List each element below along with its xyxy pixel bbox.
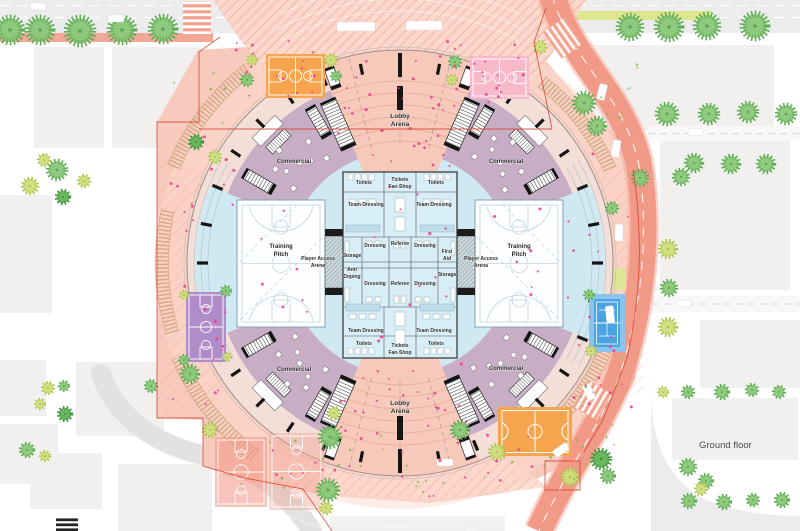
bench [424, 297, 430, 302]
tree [23, 179, 37, 193]
label-training-pitch-west: Training [269, 244, 293, 250]
crowd-dot [578, 344, 580, 346]
plant-dot [592, 447, 594, 449]
crowd-dot [527, 435, 529, 437]
crowd-dot [437, 407, 440, 410]
tree-center [251, 59, 253, 61]
crowd-dot [217, 389, 219, 391]
plant-dot [212, 72, 214, 74]
tree [190, 136, 203, 149]
crowd-dot [485, 93, 488, 96]
vehicle [605, 306, 615, 324]
tree [204, 424, 217, 437]
tree [681, 460, 695, 474]
label-tickets-north-2: Fan-Shop [388, 184, 411, 190]
crowd-dot [212, 359, 214, 361]
table-round [284, 169, 289, 174]
table-round [500, 171, 505, 176]
crowd-dot [438, 459, 441, 462]
tree-center [43, 159, 45, 161]
crowd-dot [333, 469, 336, 472]
crowd-dot [343, 400, 345, 402]
crowd-dot [388, 388, 390, 390]
label-dressing-nw: Dressing [364, 243, 385, 249]
plant-dot [283, 487, 285, 489]
locker-bank [346, 225, 380, 232]
crowd-dot [567, 296, 569, 298]
crowd-dot [368, 93, 371, 96]
crowd-dot [363, 377, 365, 379]
plant-dot [442, 481, 445, 484]
plant-dot [585, 386, 588, 389]
crowd-dot [444, 227, 446, 229]
vehicle-body [406, 21, 442, 30]
toilet-stall [424, 348, 429, 354]
tunnel-cap [457, 229, 475, 236]
crowd-dot [214, 391, 217, 394]
vehicle-body [337, 22, 375, 31]
tree-center [335, 75, 337, 77]
crosswalk-top-left [183, 1, 211, 34]
crowd-dot [176, 185, 179, 188]
crowd-dot [515, 261, 518, 264]
crowd-dot [377, 339, 380, 342]
tree-center [189, 373, 191, 375]
tree [776, 494, 789, 507]
crowd-dot [609, 392, 612, 395]
tree-center [693, 162, 695, 164]
bench [369, 314, 376, 319]
vehicle [337, 22, 375, 31]
bench [349, 314, 356, 319]
tree [586, 346, 596, 356]
plant-dot [606, 113, 608, 115]
crowd-dot [425, 140, 427, 142]
crowd-dot [621, 383, 623, 385]
vehicle-body [676, 300, 691, 307]
crowd-dot [538, 208, 541, 211]
label-training-pitch-east: Training [507, 244, 531, 250]
tree [777, 105, 795, 123]
tree [59, 381, 69, 391]
crowd-dot [445, 295, 447, 297]
crowd-dot [235, 48, 238, 51]
crowd-dot [530, 465, 533, 468]
tree [38, 154, 49, 165]
label-first-aid: First [442, 249, 453, 255]
crowd-dot [282, 209, 284, 211]
crowd-dot [388, 378, 390, 380]
tree [682, 386, 693, 397]
crowd-dot [362, 411, 364, 413]
basketball-court-purple [186, 292, 226, 362]
tree-center [44, 455, 46, 457]
crowd-dot [376, 432, 379, 435]
tree [723, 156, 739, 172]
crowd-dot [487, 101, 489, 103]
crowd-dot [572, 249, 575, 252]
plant-dot [573, 478, 575, 480]
crowd-dot [275, 473, 278, 476]
tree-center [753, 24, 757, 28]
tree [619, 16, 641, 38]
crowd-dot [374, 236, 376, 238]
crowd-dot [612, 349, 615, 352]
crowd-dot [415, 60, 417, 62]
tree-center [721, 391, 723, 393]
tree [660, 241, 676, 257]
vehicle-body [615, 224, 624, 241]
label-referee-south: Referee [391, 281, 410, 287]
tree [328, 407, 339, 418]
crowd-dot [434, 276, 436, 278]
crowd-dot [442, 109, 444, 111]
crowd-dot [423, 146, 426, 149]
tree [223, 353, 231, 361]
tree [674, 170, 688, 184]
plant-dot [636, 63, 638, 65]
tree-center [225, 290, 227, 292]
crowd-dot [464, 476, 466, 478]
crowd-dot [203, 135, 206, 138]
crowd-dot [627, 216, 629, 218]
label-dressing-ne: Dressing [414, 243, 435, 249]
plant-dot [349, 449, 352, 452]
plant-dot [597, 344, 599, 346]
bench [401, 296, 406, 303]
crowd-dot [498, 84, 500, 86]
label-tickets-south-2: Fan-Shop [388, 350, 411, 356]
table-round [489, 147, 494, 152]
label-first-aid-2: Aid [443, 256, 451, 262]
table-round [295, 350, 300, 355]
crowd-dot [376, 400, 378, 402]
bench [415, 297, 421, 302]
tree [574, 93, 593, 112]
plant-dot [581, 411, 583, 413]
player-tunnel-west [325, 236, 343, 288]
label-team-dressing-nw: Team Dressing [348, 202, 383, 208]
label-dressing-sw: Dressing [364, 281, 385, 287]
column-tick [588, 223, 599, 225]
tree-center [29, 185, 31, 187]
plant-dot [224, 87, 227, 90]
bench [375, 297, 381, 302]
tree [57, 191, 70, 204]
label-player-access-east-2: Arena [474, 263, 488, 269]
crowd-dot [597, 376, 600, 379]
crowd-dot [355, 76, 357, 78]
crowd-dot [170, 182, 173, 185]
crowd-dot [591, 152, 594, 155]
crowd-dot [522, 73, 525, 76]
label-commercial-ne: Commercial [489, 159, 524, 165]
bench [345, 288, 349, 302]
tree [695, 483, 706, 494]
building-block [700, 320, 800, 388]
plant-dot [417, 481, 419, 483]
crowd-dot [465, 420, 468, 423]
crowd-dot [497, 74, 499, 76]
tree [716, 386, 729, 399]
label-anti-doping-2: Doping [343, 274, 360, 280]
crowd-dot [183, 211, 185, 213]
tree [592, 450, 610, 468]
crowd-dot [495, 87, 498, 90]
bench [451, 288, 455, 302]
tree-center [747, 111, 750, 114]
label-tickets-north: Tickets [391, 177, 408, 183]
training-pitch-east [475, 200, 563, 327]
bench [443, 314, 450, 319]
tree-center [195, 141, 197, 143]
tree [145, 380, 156, 391]
tree [589, 118, 605, 134]
tree-center [330, 59, 332, 61]
plant-dot [508, 436, 510, 438]
crowd-dot [399, 208, 401, 210]
crowd-dot [272, 449, 274, 451]
crowd-dot [390, 160, 392, 162]
tree [28, 18, 52, 42]
tree [452, 422, 468, 438]
crowd-dot [224, 311, 226, 313]
crowd-dot [312, 51, 314, 53]
player-tunnel-east [457, 236, 475, 288]
tree [182, 366, 198, 382]
crowd-dot [221, 349, 223, 351]
crowd-dot [313, 74, 316, 77]
crowd-dot [337, 132, 340, 135]
plant-dot [580, 396, 582, 398]
crowd-dot [245, 71, 248, 74]
crowd-dot [281, 305, 284, 308]
plant-dot [636, 67, 638, 69]
label-toilets-nw: Toilets [356, 180, 372, 186]
tree [209, 151, 220, 162]
entry-axis-marker-south [397, 416, 403, 440]
plant-dot [383, 448, 385, 450]
plant-dot [582, 446, 585, 449]
crowd-dot [260, 238, 262, 240]
tree-center [226, 356, 228, 358]
tunnel-cap [457, 288, 475, 295]
crowd-dot [302, 60, 304, 62]
crowd-dot [438, 103, 440, 105]
plant-dot [240, 483, 242, 485]
plant-dot [511, 461, 514, 464]
crowd-dot [484, 61, 486, 63]
tree [320, 427, 339, 446]
tree-center [539, 46, 541, 48]
crowd-dot [346, 87, 348, 89]
tree-center [611, 207, 613, 209]
tree-center [209, 429, 211, 431]
tree [747, 494, 758, 505]
vehicle-body [688, 129, 703, 136]
label-lobby-south-2: Arena [391, 408, 410, 415]
tree-center [607, 475, 609, 477]
crowd-dot [380, 335, 383, 338]
tree [686, 155, 702, 171]
column-tick [437, 64, 439, 75]
tree [247, 55, 257, 65]
label-anti-doping: Anti [347, 267, 357, 273]
crowd-dot [360, 437, 363, 440]
crowd-dot [377, 370, 379, 372]
crowd-dot [301, 67, 303, 69]
vehicle-body [108, 15, 124, 22]
building-block [0, 195, 52, 313]
site-plan: Lobby Arena Lobby Arena Commercial Comme… [0, 0, 800, 531]
label-player-access-west: Player Access [301, 256, 335, 262]
bench [366, 297, 372, 302]
locker-bank [420, 304, 454, 311]
tree-center [183, 359, 185, 361]
tree [151, 17, 175, 41]
tree [40, 451, 50, 461]
crowd-dot [497, 95, 500, 98]
crowd-dot [302, 472, 304, 474]
tree [718, 496, 731, 509]
crowd-dot [236, 42, 238, 44]
tree [48, 161, 66, 179]
plant-dot [619, 116, 622, 119]
crowd-dot [250, 66, 252, 68]
label-storage-east: Storage [438, 272, 457, 278]
plant-dot [405, 464, 407, 466]
tree-center [687, 391, 689, 393]
toilet-stall [445, 174, 450, 180]
tree-center [687, 466, 689, 468]
tree [490, 445, 504, 459]
crowd-dot [417, 391, 419, 393]
crowd-dot [348, 107, 350, 109]
crowd-dot [296, 268, 299, 271]
crowd-dot [205, 403, 207, 405]
plant-dot [594, 442, 596, 444]
crowd-dot [282, 77, 285, 80]
crowd-dot [416, 193, 418, 195]
label-training-pitch-east-2: Pitch [512, 252, 527, 258]
crowd-dot [499, 479, 502, 482]
tree-center [752, 499, 754, 501]
label-ground-floor: Ground floor [699, 440, 752, 451]
crowd-dot [191, 203, 193, 205]
tree-center [8, 28, 12, 32]
crowd-dot [481, 71, 483, 73]
crowd-dot [482, 75, 484, 77]
tree-center [765, 163, 767, 165]
plant-dot [294, 440, 297, 443]
crowd-dot [183, 285, 186, 288]
crowd-dot [458, 405, 461, 408]
label-training-pitch-west-2: Pitch [274, 252, 289, 258]
crowd-dot [449, 165, 451, 167]
crowd-dot [446, 40, 449, 43]
plant-dot [606, 436, 608, 438]
crowd-dot [215, 338, 218, 341]
tree [758, 156, 774, 172]
tree [773, 386, 784, 397]
tree-center [38, 28, 42, 32]
tree [696, 15, 718, 37]
crowd-dot [301, 299, 303, 301]
label-lobby-north-2: Arena [391, 121, 410, 128]
plant-dot [337, 464, 340, 467]
toilet-stall [369, 348, 374, 354]
tree [21, 444, 34, 457]
crowd-dot [276, 75, 278, 77]
label-toilets-sw: Toilets [356, 341, 372, 347]
plant-dot [627, 89, 629, 91]
tree [241, 74, 252, 85]
crowd-dot [529, 293, 532, 296]
tree [318, 480, 337, 499]
crowd-dot [412, 77, 415, 80]
crowd-dot [372, 154, 374, 156]
bench [395, 330, 405, 344]
plant-dot [629, 87, 631, 89]
tree [657, 104, 676, 123]
crowd-dot [460, 363, 463, 366]
tree-center [583, 102, 586, 105]
crowd-dot [487, 472, 489, 474]
label-referee-north: Referee [391, 241, 410, 247]
plant-dot [415, 485, 417, 487]
tree [179, 355, 189, 365]
crowd-dot [221, 345, 224, 348]
crowd-dot [191, 205, 194, 208]
basketball-court-orange [266, 54, 325, 98]
crowd-dot [427, 425, 429, 427]
crowd-dot [231, 204, 233, 206]
tree-center [64, 413, 66, 415]
crowd-dot [567, 220, 569, 222]
tree-center [662, 391, 664, 393]
crowd-dot [344, 429, 347, 432]
tree [67, 18, 93, 44]
crowd-dot [412, 370, 414, 372]
crowd-dot [402, 97, 404, 99]
basketball-court-pink [470, 56, 529, 99]
tree-center [705, 480, 707, 482]
tree-center [588, 294, 590, 296]
bench [433, 314, 440, 319]
tree-center [569, 476, 571, 478]
plant-dot [576, 439, 578, 441]
tree-center [667, 248, 669, 250]
tree-center [325, 507, 327, 509]
tree-center [700, 488, 702, 490]
tree-center [454, 61, 456, 63]
crowd-dot [457, 441, 460, 444]
crowd-dot [311, 91, 313, 93]
crosswalk-bottom-left [56, 517, 78, 531]
crowd-dot [454, 65, 457, 68]
crowd-dot [210, 168, 213, 171]
crowd-dot [296, 92, 298, 94]
crowd-dot [513, 44, 516, 47]
column-tick [201, 223, 212, 225]
tree [180, 291, 188, 299]
tree-center [785, 113, 788, 116]
tree-center [83, 180, 85, 182]
tree-center [778, 391, 780, 393]
toilet-stall [348, 348, 353, 354]
plant-dot [613, 444, 615, 446]
tree [447, 75, 457, 85]
